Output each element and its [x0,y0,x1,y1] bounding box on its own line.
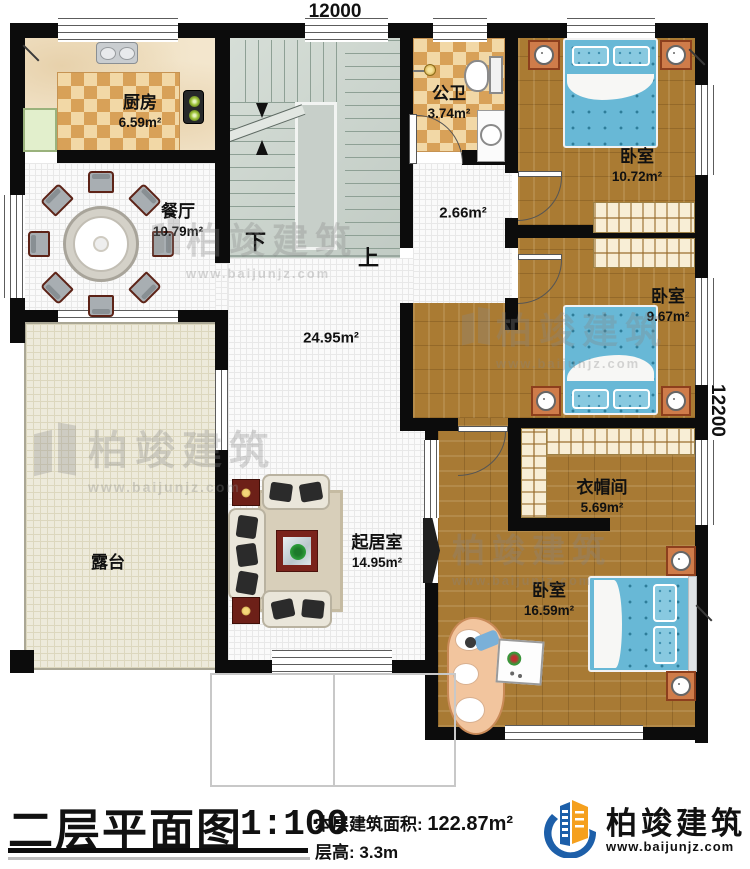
side-table [232,597,260,624]
floor-area-row: 本层建筑面积: 122.87m² [315,810,513,836]
dining-table-center [93,236,109,252]
bedroom-table [496,638,545,685]
dining-chair [88,295,114,317]
company-name: 柏竣建筑 [606,798,746,843]
suite-left-wall [425,418,438,440]
company-url: www.baijunjz.com [606,839,734,854]
window [695,278,718,385]
room-label-bathroom: 公卫3.74m² [428,83,471,123]
lamp-icon [666,391,686,411]
watermark: 柏竣建筑 www.baijunjz.com [186,212,358,281]
terrace-wall [178,310,228,322]
wall [487,23,567,38]
nightstand [666,546,696,576]
bedroom-partition-wall [512,225,593,238]
room-label-hall: 24.95m² [303,328,359,348]
shower-head-icon [424,64,436,76]
wardrobe [593,238,695,268]
wardrobe [521,428,547,518]
terrace-living-wall [215,322,228,370]
plant-icon [290,544,306,560]
toilet-tank [489,56,503,94]
terrace-corner-post [10,650,34,673]
room-label-corridor: 2.66m² [439,203,487,223]
lamp-icon [671,551,691,571]
lamp-icon [671,676,691,696]
room-label-kitchen: 厨房6.59m² [119,92,162,132]
sofa-bottom [262,590,332,628]
person-head [465,637,476,648]
dimension-right: 12200 [706,384,728,437]
room-label-terrace: 露台 [91,552,125,574]
watermark: 柏竣建筑 www.baijunjz.com [452,524,612,588]
stove-icon [183,90,204,124]
room-label-cloakroom: 衣帽间5.69m² [577,477,628,517]
stairs-top-flight [245,40,345,102]
window [695,85,718,175]
window [695,440,718,525]
terrace-deck [24,322,226,670]
window [58,18,178,42]
watermark: 柏竣建筑 www.baijunjz.com [496,302,668,371]
title-underline [8,848,308,853]
stairs-up-label: 上 [358,242,379,272]
master-bottom-wall [643,727,695,740]
corridor-floor [413,163,512,303]
terrace-wall [10,310,24,343]
hall-bedroom-wall [400,303,413,418]
watermark-logo-icon [460,306,494,348]
watermark: 柏竣建筑 www.baijunjz.com [88,418,276,495]
wardrobe [521,428,695,455]
living-bottom-wall [215,660,272,673]
title-underline-shadow [8,857,310,860]
kitchen-wall [57,150,215,163]
refrigerator [23,108,57,152]
floor-height-row: 层高: 3.3m [315,838,398,863]
nightstand [528,40,560,70]
lamp-icon [536,391,556,411]
nightstand [666,671,696,701]
window [272,650,392,673]
closet-left-wall [508,431,521,518]
dining-chair [28,231,50,257]
nightstand [660,40,692,70]
lamp-icon [534,45,554,65]
vanity-counter [477,110,505,162]
lower-floor-outline-divider [333,673,335,787]
headboard [688,576,697,672]
wall [695,23,708,85]
terrace-wall [24,310,58,322]
bed [563,38,658,148]
bed [588,576,697,672]
dimension-top: 12000 [300,1,370,23]
company-logo-icon [538,794,602,858]
wardrobe [593,202,695,233]
stairs-arrow-up-icon [256,140,268,155]
wall [178,23,305,38]
watermark-logo-icon [150,216,184,258]
room-label-living: 起居室14.95m² [352,532,403,572]
window [505,725,643,740]
coffee-table [276,530,318,572]
living-bottom-wall [392,660,437,673]
bathroom-right-wall [505,23,518,173]
suite-sliding-door [424,440,439,518]
sofa-left [228,508,266,600]
terrace-railing [58,310,178,320]
window [4,195,25,298]
window [433,18,487,42]
nightstand [661,386,691,416]
stairs-arrow-down-icon [256,103,268,118]
dining-chair [88,171,114,193]
floor-plan-page: 下 上 [0,0,750,869]
lamp-icon [666,45,686,65]
watermark-logo-icon [30,420,82,480]
wall [695,175,708,278]
room-label-bedroom-top: 卧室10.72m² [612,146,662,186]
kitchen-sink [96,42,138,64]
bathroom-door-leaf [409,114,417,164]
nightstand [531,386,561,416]
